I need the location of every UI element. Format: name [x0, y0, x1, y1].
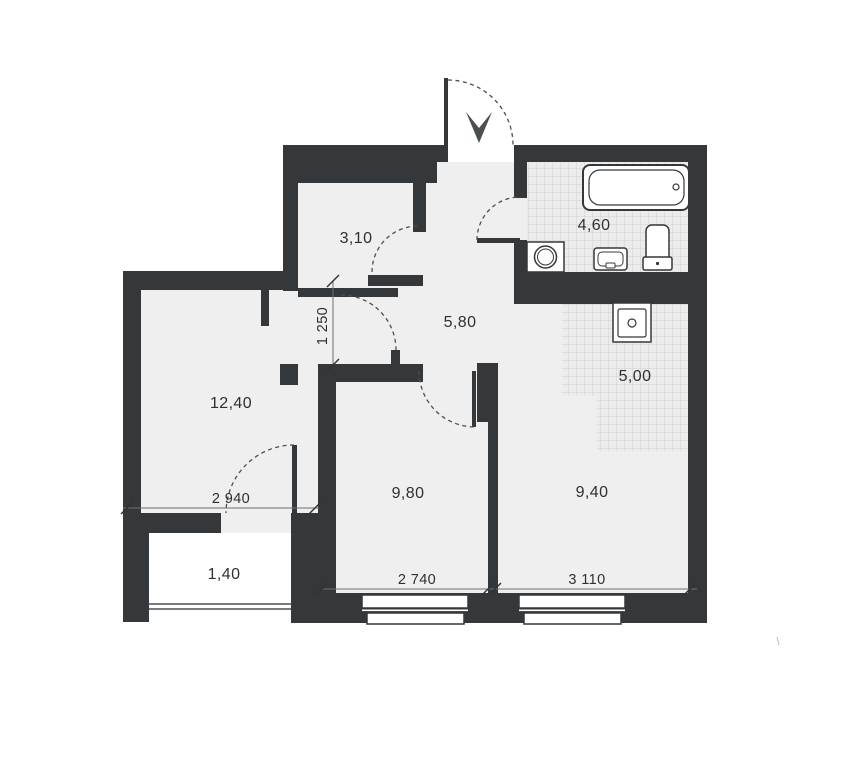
- floor-plan-canvas: 1 250 2 940 2 740 3 110 3,10 4,60 5,80 5…: [0, 0, 850, 771]
- bathroom-door-leaf: [477, 238, 520, 243]
- room-label-hallway: 5,80: [444, 314, 477, 331]
- washing-machine: [527, 242, 564, 272]
- entrance-door-leaf: [444, 78, 448, 145]
- dimension-label-living-width: 2 940: [212, 491, 250, 507]
- room-label-bedroom: 9,80: [392, 485, 425, 502]
- kitchen-sink: [613, 303, 651, 342]
- room-label-balcony: 1,40: [208, 566, 241, 583]
- balcony-door-leaf: [292, 445, 297, 513]
- bedroom-window: [362, 595, 468, 624]
- stray-mark: [777, 637, 779, 645]
- room-label-kitchen-zone: 5,00: [619, 368, 652, 385]
- bathtub: [583, 165, 689, 210]
- sink: [594, 248, 627, 270]
- room-label-living-room: 12,40: [210, 395, 252, 412]
- toilet: [643, 225, 672, 270]
- entrance-threshold: [448, 75, 514, 162]
- room-label-kitchen-room: 9,40: [576, 484, 609, 501]
- kitchen-room-window: [519, 595, 625, 624]
- sliding-door-leaf: [368, 275, 423, 286]
- dimension-label-kitchen-room-width: 3 110: [568, 572, 605, 588]
- room-label-closet: 3,10: [340, 230, 373, 247]
- bedroom-door-leaf: [472, 371, 476, 427]
- dimension-label-opening: 1 250: [315, 307, 331, 345]
- room-label-bathroom: 4,60: [578, 217, 611, 234]
- dimension-label-bedroom-width: 2 740: [398, 572, 436, 588]
